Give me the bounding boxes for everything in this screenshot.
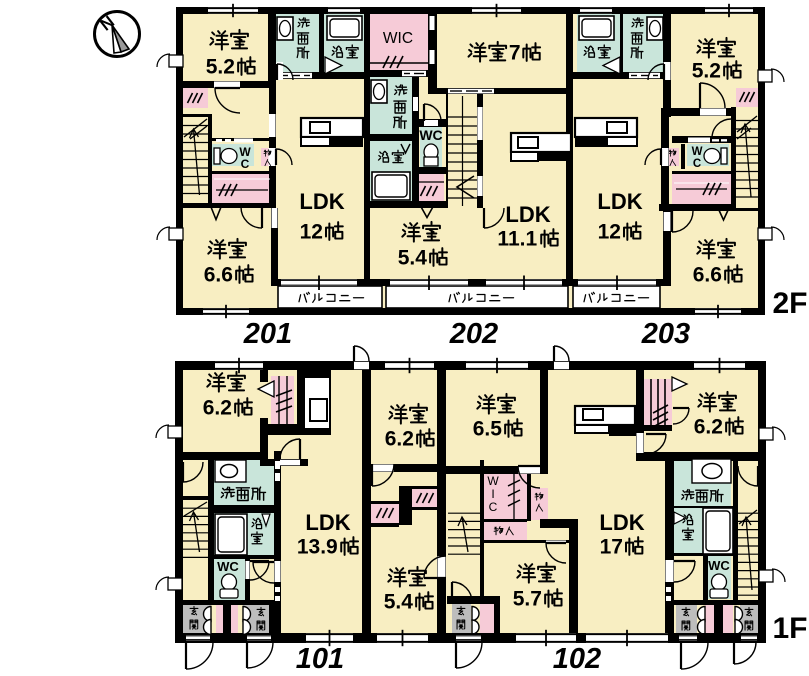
svg-text:17: 17: [600, 536, 623, 559]
svg-text:6.6: 6.6: [204, 264, 233, 287]
svg-text:1F: 1F: [772, 612, 807, 645]
svg-text:6.2: 6.2: [385, 428, 414, 451]
svg-text:13.9: 13.9: [297, 536, 338, 559]
svg-text:202: 202: [449, 318, 498, 350]
svg-text:LDK: LDK: [597, 189, 642, 214]
svg-text:W: W: [487, 474, 499, 488]
svg-text:5.4: 5.4: [398, 247, 428, 270]
svg-text:LDK: LDK: [305, 510, 350, 535]
svg-text:WIC: WIC: [383, 30, 413, 47]
svg-text:LDK: LDK: [299, 189, 344, 214]
svg-text:W: W: [692, 146, 703, 158]
svg-text:C: C: [693, 158, 701, 170]
svg-text:12: 12: [598, 221, 621, 244]
svg-text:6.2: 6.2: [694, 416, 723, 439]
svg-text:11.1: 11.1: [497, 228, 537, 251]
svg-text:LDK: LDK: [599, 510, 644, 535]
svg-text:201: 201: [243, 318, 292, 350]
svg-text:6.2: 6.2: [203, 397, 232, 420]
svg-text:203: 203: [641, 318, 690, 350]
svg-text:5.4: 5.4: [384, 591, 414, 614]
svg-text:5.2: 5.2: [206, 56, 235, 79]
svg-text:I: I: [491, 487, 494, 501]
svg-text:101: 101: [296, 643, 344, 675]
svg-text:C: C: [489, 500, 498, 514]
svg-text:2F: 2F: [772, 287, 807, 320]
svg-text:WC: WC: [217, 559, 239, 574]
svg-text:12: 12: [300, 221, 323, 244]
svg-text:102: 102: [553, 643, 601, 675]
svg-text:LDK: LDK: [505, 202, 550, 227]
svg-text:WC: WC: [708, 558, 730, 573]
svg-text:C: C: [241, 157, 250, 171]
svg-text:5.7: 5.7: [513, 588, 542, 611]
svg-text:7: 7: [509, 42, 521, 65]
svg-text:6.6: 6.6: [693, 264, 722, 287]
svg-text:WC: WC: [419, 127, 442, 143]
svg-text:5.2: 5.2: [692, 60, 721, 83]
svg-text:6.5: 6.5: [473, 418, 503, 441]
